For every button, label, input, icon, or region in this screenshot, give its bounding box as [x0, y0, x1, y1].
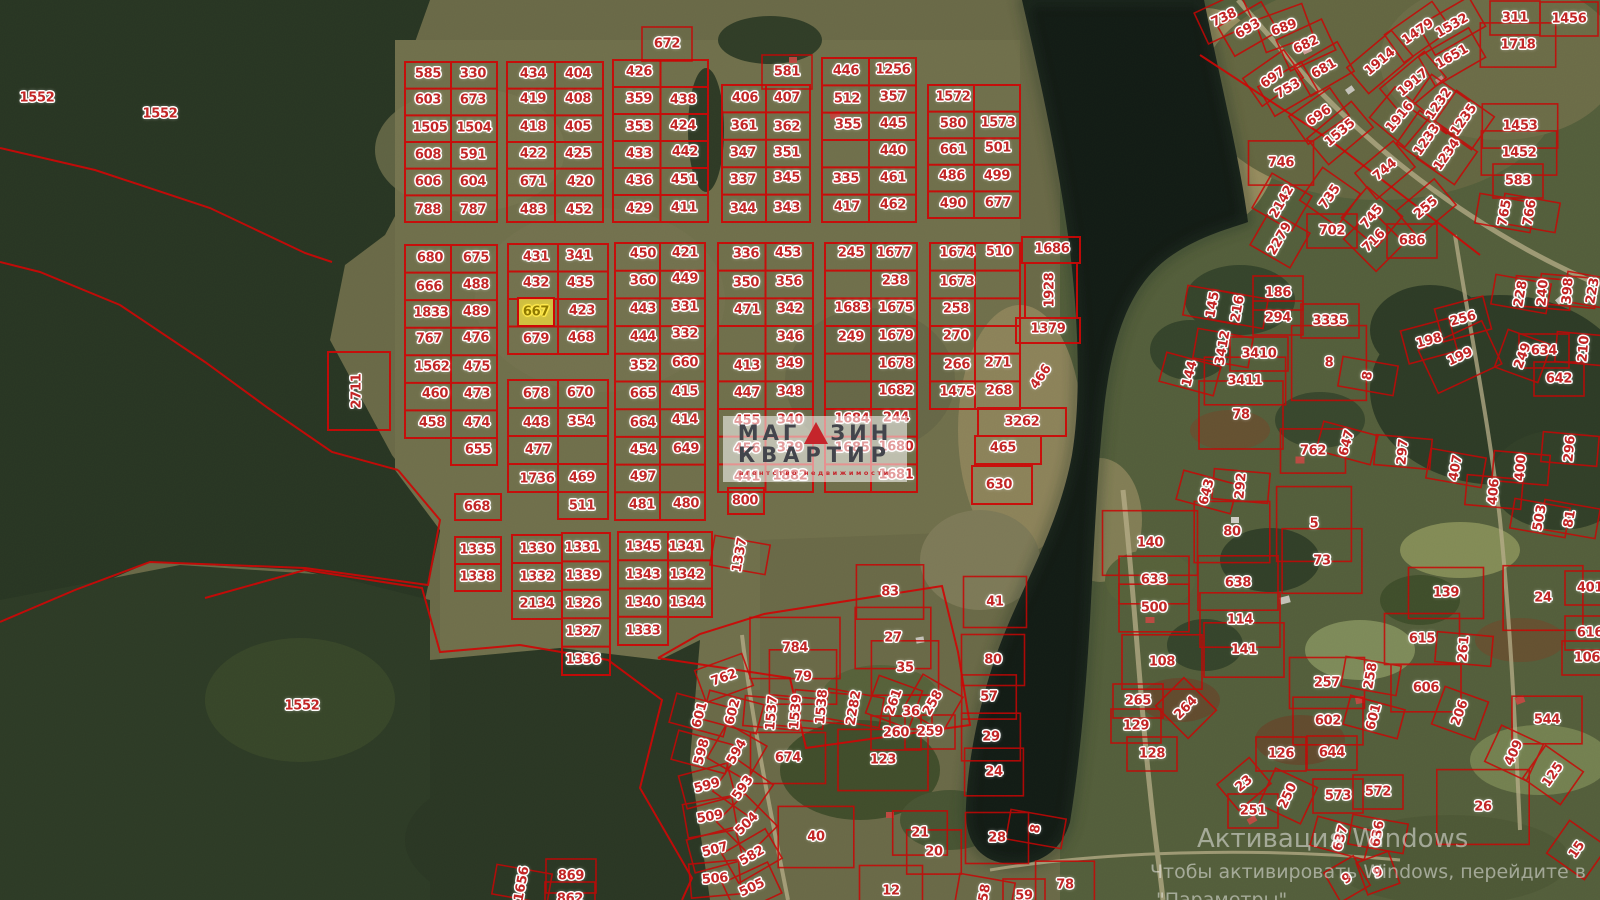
- plot-label-466[interactable]: 466: [1028, 363, 1054, 392]
- plot-label-633[interactable]: 633: [1141, 574, 1167, 587]
- plot-label-630[interactable]: 630: [986, 479, 1012, 492]
- plot-label-501[interactable]: 501: [985, 142, 1011, 155]
- plot-label-1234[interactable]: 1234: [1432, 137, 1463, 173]
- plot-label-716[interactable]: 716: [1360, 227, 1388, 255]
- plot-label-1572[interactable]: 1572: [936, 91, 971, 104]
- plot-label-407[interactable]: 407: [774, 92, 800, 105]
- plot-label-784[interactable]: 784: [782, 642, 808, 655]
- plot-label-1256[interactable]: 1256: [876, 64, 911, 77]
- plot-label-585[interactable]: 585: [415, 68, 441, 81]
- plot-label-2142[interactable]: 2142: [1268, 184, 1297, 221]
- plot-label-661[interactable]: 661: [940, 144, 966, 157]
- plot-label-311[interactable]: 311: [1502, 12, 1528, 25]
- plot-label-36[interactable]: 36: [902, 706, 920, 719]
- plot-label-26[interactable]: 26: [1474, 801, 1492, 814]
- plot-label-20[interactable]: 20: [925, 846, 943, 859]
- plot-label-346[interactable]: 346: [777, 331, 803, 344]
- plot-label-1379[interactable]: 1379: [1031, 323, 1066, 336]
- plot-label-421[interactable]: 421: [672, 247, 698, 260]
- plot-label-198[interactable]: 198: [1415, 331, 1444, 350]
- plot-label-681[interactable]: 681: [1309, 57, 1338, 81]
- plot-label-582[interactable]: 582: [737, 844, 766, 868]
- plot-label-360[interactable]: 360: [630, 275, 656, 288]
- plot-label-431[interactable]: 431: [523, 251, 549, 264]
- plot-label-336[interactable]: 336: [733, 248, 759, 261]
- plot-label-442[interactable]: 442: [672, 146, 698, 159]
- plot-label-409[interactable]: 409: [1503, 738, 1526, 767]
- plot-label-512[interactable]: 512: [834, 93, 860, 106]
- plot-label-468[interactable]: 468: [568, 332, 594, 345]
- plot-label-80[interactable]: 80: [1223, 526, 1241, 539]
- plot-label-1673[interactable]: 1673: [940, 276, 975, 289]
- plot-label-599[interactable]: 599: [693, 776, 722, 795]
- plot-label-24[interactable]: 24: [985, 766, 1003, 779]
- plot-label-643[interactable]: 643: [1197, 478, 1216, 507]
- plot-label-667[interactable]: 667: [523, 306, 549, 319]
- plot-label-452[interactable]: 452: [566, 204, 592, 217]
- plot-label-664[interactable]: 664: [630, 417, 656, 430]
- plot-label-766[interactable]: 766: [1521, 199, 1538, 227]
- plot-label-511[interactable]: 511: [569, 500, 595, 513]
- plot-label-506[interactable]: 506: [701, 871, 728, 886]
- plot-label-341[interactable]: 341: [566, 250, 592, 263]
- plot-label-583[interactable]: 583: [1505, 175, 1531, 188]
- plot-label-489[interactable]: 489: [463, 306, 489, 319]
- plot-label-504[interactable]: 504: [733, 810, 761, 838]
- plot-label-1327[interactable]: 1327: [566, 626, 601, 639]
- plot-label-1679[interactable]: 1679: [879, 330, 914, 343]
- plot-label-1677[interactable]: 1677: [877, 247, 912, 260]
- plot-label-666[interactable]: 666: [416, 281, 442, 294]
- plot-label-258[interactable]: 258: [921, 688, 945, 717]
- plot-label-800[interactable]: 800: [732, 495, 758, 508]
- plot-label-674[interactable]: 674: [775, 752, 801, 765]
- plot-label-8[interactable]: 8: [1029, 824, 1043, 835]
- plot-label-255[interactable]: 255: [1412, 195, 1440, 222]
- plot-label-480[interactable]: 480: [673, 498, 699, 511]
- plot-label-245[interactable]: 245: [838, 247, 864, 260]
- plot-label-57[interactable]: 57: [980, 691, 998, 704]
- plot-label-638[interactable]: 638: [1225, 577, 1251, 590]
- plot-label-591[interactable]: 591: [460, 149, 486, 162]
- plot-label-767[interactable]: 767: [416, 333, 442, 346]
- plot-label-404[interactable]: 404: [565, 68, 591, 81]
- plot-label-788[interactable]: 788: [415, 204, 441, 217]
- plot-label-344[interactable]: 344: [730, 203, 756, 216]
- plot-label-435[interactable]: 435: [567, 277, 593, 290]
- plot-label-78[interactable]: 78: [1056, 879, 1074, 892]
- plot-label-660[interactable]: 660: [672, 357, 698, 370]
- plot-label-1475[interactable]: 1475: [940, 386, 975, 399]
- plot-label-679[interactable]: 679: [523, 333, 549, 346]
- plot-label-745[interactable]: 745: [1359, 203, 1386, 231]
- plot-label-348[interactable]: 348: [777, 386, 803, 399]
- plot-label-1678[interactable]: 1678: [879, 358, 914, 371]
- plot-label-3412[interactable]: 3412: [1214, 330, 1233, 367]
- plot-label-1573[interactable]: 1573: [981, 117, 1016, 130]
- plot-label-608[interactable]: 608: [415, 149, 441, 162]
- plot-label-129[interactable]: 129: [1123, 720, 1149, 733]
- plot-label-655[interactable]: 655: [465, 444, 491, 457]
- plot-label-1342[interactable]: 1342: [670, 569, 705, 582]
- plot-label-3411[interactable]: 3411: [1228, 375, 1263, 388]
- plot-label-426[interactable]: 426: [626, 66, 652, 79]
- plot-label-9[interactable]: 9: [1340, 871, 1354, 887]
- plot-label-602[interactable]: 602: [1315, 715, 1341, 728]
- plot-label-1456[interactable]: 1456: [1552, 13, 1587, 26]
- plot-label-79[interactable]: 79: [794, 671, 812, 684]
- plot-label-689[interactable]: 689: [1269, 17, 1298, 38]
- plot-label-1916[interactable]: 1916: [1384, 99, 1416, 134]
- plot-label-446[interactable]: 446: [833, 65, 859, 78]
- plot-label-460[interactable]: 460: [422, 388, 448, 401]
- plot-label-449[interactable]: 449: [672, 273, 698, 286]
- plot-label-357[interactable]: 357: [880, 91, 906, 104]
- plot-label-673[interactable]: 673: [460, 94, 486, 107]
- plot-label-5[interactable]: 5: [1310, 518, 1319, 531]
- plot-label-335[interactable]: 335: [833, 173, 859, 186]
- plot-label-41[interactable]: 41: [986, 596, 1004, 609]
- plot-label-581[interactable]: 581: [774, 66, 800, 79]
- plot-label-603[interactable]: 603: [415, 94, 441, 107]
- plot-label-1333[interactable]: 1333: [626, 625, 661, 638]
- plot-label-572[interactable]: 572: [1365, 786, 1391, 799]
- plot-label-696[interactable]: 696: [1305, 103, 1334, 129]
- plot-label-359[interactable]: 359: [626, 93, 652, 106]
- plot-label-1718[interactable]: 1718: [1501, 39, 1536, 52]
- plot-label-1552[interactable]: 1552: [285, 700, 320, 713]
- plot-label-1479[interactable]: 1479: [1400, 17, 1436, 48]
- plot-label-139[interactable]: 139: [1433, 587, 1459, 600]
- plot-label-1235[interactable]: 1235: [1449, 102, 1480, 138]
- plot-label-250[interactable]: 250: [1277, 781, 1300, 810]
- plot-label-258[interactable]: 258: [943, 303, 969, 316]
- plot-label-680[interactable]: 680: [417, 252, 443, 265]
- plot-label-765[interactable]: 765: [1496, 199, 1513, 227]
- plot-label-594[interactable]: 594: [725, 737, 749, 766]
- plot-label-1452[interactable]: 1452: [1502, 147, 1537, 160]
- plot-label-361[interactable]: 361: [731, 120, 757, 133]
- plot-label-1651[interactable]: 1651: [1434, 43, 1471, 72]
- plot-label-490[interactable]: 490: [940, 198, 966, 211]
- plot-label-598[interactable]: 598: [692, 738, 711, 767]
- plot-label-332[interactable]: 332: [672, 328, 698, 341]
- plot-label-637[interactable]: 637: [1331, 824, 1350, 853]
- plot-label-471[interactable]: 471: [734, 304, 760, 317]
- plot-label-24[interactable]: 24: [1534, 592, 1552, 605]
- plot-label-210[interactable]: 210: [1576, 335, 1591, 362]
- plot-label-475[interactable]: 475: [464, 361, 490, 374]
- plot-label-448[interactable]: 448: [523, 417, 549, 430]
- plot-label-433[interactable]: 433: [626, 148, 652, 161]
- plot-label-1683[interactable]: 1683: [835, 302, 870, 315]
- plot-label-458[interactable]: 458: [419, 417, 445, 430]
- plot-label-615[interactable]: 615: [1409, 633, 1435, 646]
- plot-label-29[interactable]: 29: [982, 731, 1000, 744]
- plot-label-488[interactable]: 488: [463, 279, 489, 292]
- plot-label-602[interactable]: 602: [723, 698, 742, 727]
- plot-label-1562[interactable]: 1562: [415, 361, 450, 374]
- plot-label-1686[interactable]: 1686: [1035, 243, 1070, 256]
- plot-label-1332[interactable]: 1332: [520, 571, 555, 584]
- plot-label-616[interactable]: 616: [1577, 627, 1600, 640]
- plot-label-447[interactable]: 447: [734, 387, 760, 400]
- plot-label-28[interactable]: 28: [988, 832, 1006, 845]
- plot-label-1339[interactable]: 1339: [566, 570, 601, 583]
- plot-label-3410[interactable]: 3410: [1242, 348, 1277, 361]
- plot-label-58[interactable]: 58: [977, 883, 993, 900]
- plot-label-1656[interactable]: 1656: [513, 866, 532, 900]
- plot-label-481[interactable]: 481: [629, 499, 655, 512]
- plot-label-636[interactable]: 636: [1369, 820, 1386, 848]
- plot-label-762[interactable]: 762: [1300, 445, 1326, 458]
- plot-label-108[interactable]: 108: [1149, 656, 1175, 669]
- plot-label-123[interactable]: 123: [870, 754, 896, 767]
- plot-label-423[interactable]: 423: [569, 305, 595, 318]
- plot-label-406[interactable]: 406: [1486, 478, 1501, 505]
- plot-label-509[interactable]: 509: [696, 808, 724, 825]
- plot-label-352[interactable]: 352: [630, 360, 656, 373]
- plot-label-1340[interactable]: 1340: [626, 597, 661, 610]
- plot-label-682[interactable]: 682: [1291, 34, 1320, 57]
- plot-label-343[interactable]: 343: [774, 202, 800, 215]
- plot-label-503[interactable]: 503: [1531, 504, 1548, 532]
- plot-label-199[interactable]: 199: [1445, 346, 1474, 369]
- plot-label-1337[interactable]: 1337: [731, 537, 750, 574]
- plot-label-1532[interactable]: 1532: [1434, 12, 1471, 41]
- plot-label-601[interactable]: 601: [1364, 703, 1383, 732]
- plot-label-413[interactable]: 413: [734, 360, 760, 373]
- plot-label-342[interactable]: 342: [777, 303, 803, 316]
- plot-label-1341[interactable]: 1341: [669, 541, 704, 554]
- plot-label-355[interactable]: 355: [835, 119, 861, 132]
- plot-label-411[interactable]: 411: [671, 202, 697, 215]
- plot-label-1331[interactable]: 1331: [565, 542, 600, 555]
- plot-label-474[interactable]: 474: [464, 417, 490, 430]
- plot-label-261[interactable]: 261: [1456, 635, 1471, 662]
- plot-label-8[interactable]: 8: [1361, 371, 1375, 382]
- plot-label-23[interactable]: 23: [1233, 773, 1255, 794]
- plot-label-2282[interactable]: 2282: [845, 690, 864, 727]
- plot-label-1928[interactable]: 1928: [1044, 273, 1057, 308]
- plot-label-434[interactable]: 434: [520, 68, 546, 81]
- plot-label-349[interactable]: 349: [777, 358, 803, 371]
- plot-label-580[interactable]: 580: [940, 118, 966, 131]
- plot-label-251[interactable]: 251: [1240, 805, 1266, 818]
- plot-label-477[interactable]: 477: [525, 444, 551, 457]
- plot-label-665[interactable]: 665: [630, 388, 656, 401]
- plot-label-292[interactable]: 292: [1233, 472, 1248, 499]
- plot-label-1326[interactable]: 1326: [566, 598, 601, 611]
- plot-label-422[interactable]: 422: [520, 148, 546, 161]
- plot-label-1232[interactable]: 1232: [1424, 86, 1455, 122]
- plot-label-125[interactable]: 125: [1540, 761, 1566, 790]
- plot-label-400[interactable]: 400: [1513, 454, 1528, 481]
- plot-label-606[interactable]: 606: [415, 176, 441, 189]
- plot-label-440[interactable]: 440: [880, 145, 906, 158]
- plot-label-451[interactable]: 451: [671, 174, 697, 187]
- plot-label-1338[interactable]: 1338: [460, 571, 495, 584]
- plot-label-432[interactable]: 432: [523, 277, 549, 290]
- plot-label-1233[interactable]: 1233: [1412, 122, 1443, 158]
- plot-label-296[interactable]: 296: [1562, 435, 1577, 462]
- plot-label-499[interactable]: 499: [984, 170, 1010, 183]
- plot-label-27[interactable]: 27: [884, 632, 902, 645]
- plot-label-80[interactable]: 80: [984, 654, 1002, 667]
- plot-label-1914[interactable]: 1914: [1362, 46, 1397, 78]
- plot-label-297[interactable]: 297: [1395, 438, 1410, 465]
- plot-label-12[interactable]: 12: [882, 885, 900, 898]
- plot-label-593[interactable]: 593: [730, 774, 756, 803]
- plot-label-670[interactable]: 670: [567, 387, 593, 400]
- plot-label-414[interactable]: 414: [672, 414, 698, 427]
- plot-label-15[interactable]: 15: [1567, 839, 1588, 861]
- plot-label-126[interactable]: 126: [1268, 748, 1294, 761]
- plot-label-510[interactable]: 510: [986, 246, 1012, 259]
- plot-label-497[interactable]: 497: [630, 471, 656, 484]
- plot-label-268[interactable]: 268: [986, 385, 1012, 398]
- plot-label-417[interactable]: 417: [834, 201, 860, 214]
- plot-label-2279[interactable]: 2279: [1266, 221, 1295, 258]
- plot-label-1917[interactable]: 1917: [1395, 67, 1430, 99]
- plot-label-398[interactable]: 398: [1560, 277, 1575, 304]
- plot-label-216[interactable]: 216: [1229, 295, 1246, 323]
- plot-label-469[interactable]: 469: [569, 472, 595, 485]
- plot-label-257[interactable]: 257: [1314, 677, 1340, 690]
- plot-label-738[interactable]: 738: [1209, 7, 1238, 30]
- plot-label-354[interactable]: 354: [568, 416, 594, 429]
- plot-label-350[interactable]: 350: [733, 277, 759, 290]
- plot-label-1345[interactable]: 1345: [626, 541, 661, 554]
- plot-label-1736[interactable]: 1736: [520, 473, 555, 486]
- plot-label-762[interactable]: 762: [709, 667, 738, 688]
- plot-label-419[interactable]: 419: [520, 93, 546, 106]
- plot-label-418[interactable]: 418: [520, 121, 546, 134]
- plot-label-425[interactable]: 425: [565, 148, 591, 161]
- plot-label-1833[interactable]: 1833: [414, 307, 449, 320]
- plot-label-407[interactable]: 407: [1447, 454, 1464, 482]
- plot-label-144[interactable]: 144: [1180, 360, 1199, 389]
- plot-label-83[interactable]: 83: [881, 586, 899, 599]
- plot-label-266[interactable]: 266: [944, 359, 970, 372]
- plot-label-1537[interactable]: 1537: [764, 695, 780, 731]
- plot-label-505[interactable]: 505: [737, 877, 766, 900]
- plot-label-406[interactable]: 406: [732, 92, 758, 105]
- plot-label-2134[interactable]: 2134: [520, 598, 555, 611]
- plot-label-420[interactable]: 420: [567, 176, 593, 189]
- plot-label-294[interactable]: 294: [1265, 312, 1291, 325]
- plot-label-443[interactable]: 443: [630, 303, 656, 316]
- plot-label-35[interactable]: 35: [896, 662, 914, 675]
- plot-label-356[interactable]: 356: [776, 276, 802, 289]
- plot-label-331[interactable]: 331: [672, 301, 698, 314]
- plot-label-746[interactable]: 746: [1268, 157, 1294, 170]
- plot-label-649[interactable]: 649: [673, 443, 699, 456]
- plot-label-21[interactable]: 21: [911, 827, 929, 840]
- plot-label-573[interactable]: 573: [1325, 790, 1351, 803]
- plot-label-601[interactable]: 601: [690, 701, 709, 730]
- plot-label-141[interactable]: 141: [1231, 644, 1257, 657]
- map-viewport[interactable]: 1552155215522711585330434404426672603673…: [0, 0, 1600, 900]
- plot-label-106[interactable]: 106: [1574, 652, 1600, 665]
- plot-label-337[interactable]: 337: [730, 174, 756, 187]
- plot-label-606[interactable]: 606: [1413, 682, 1439, 695]
- plot-label-476[interactable]: 476: [463, 332, 489, 345]
- plot-label-186[interactable]: 186: [1265, 287, 1291, 300]
- plot-label-114[interactable]: 114: [1227, 614, 1253, 627]
- plot-label-260[interactable]: 260: [883, 727, 909, 740]
- plot-label-223[interactable]: 223: [1584, 277, 1600, 305]
- plot-label-465[interactable]: 465: [990, 442, 1016, 455]
- plot-label-1453[interactable]: 1453: [1503, 120, 1538, 133]
- plot-label-461[interactable]: 461: [880, 172, 906, 185]
- plot-label-862[interactable]: 862: [557, 893, 583, 900]
- plot-label-1330[interactable]: 1330: [520, 543, 555, 556]
- plot-label-1343[interactable]: 1343: [626, 569, 661, 582]
- plot-label-424[interactable]: 424: [670, 120, 696, 133]
- plot-label-1552[interactable]: 1552: [20, 92, 55, 105]
- plot-label-238[interactable]: 238: [882, 275, 908, 288]
- plot-label-81[interactable]: 81: [1562, 509, 1578, 528]
- plot-label-8[interactable]: 8: [1325, 357, 1334, 370]
- plot-label-408[interactable]: 408: [565, 93, 591, 106]
- plot-label-259[interactable]: 259: [917, 726, 943, 739]
- plot-label-500[interactable]: 500: [1141, 602, 1167, 615]
- plot-label-1335[interactable]: 1335: [460, 544, 495, 557]
- plot-label-3262[interactable]: 3262: [1005, 416, 1040, 429]
- plot-label-40[interactable]: 40: [807, 831, 825, 844]
- plot-label-672[interactable]: 672: [654, 38, 680, 51]
- plot-label-787[interactable]: 787: [460, 204, 486, 217]
- plot-label-240[interactable]: 240: [1535, 279, 1550, 306]
- plot-label-1504[interactable]: 1504: [457, 122, 492, 135]
- plot-label-353[interactable]: 353: [626, 121, 652, 134]
- plot-label-671[interactable]: 671: [520, 176, 546, 189]
- plot-label-1505[interactable]: 1505: [413, 122, 448, 135]
- plot-label-264[interactable]: 264: [1172, 694, 1200, 722]
- plot-label-604[interactable]: 604: [460, 176, 486, 189]
- plot-label-1674[interactable]: 1674: [940, 247, 975, 260]
- plot-label-401[interactable]: 401: [1577, 582, 1600, 595]
- plot-label-1336[interactable]: 1336: [566, 654, 601, 667]
- plot-label-1682[interactable]: 1682: [879, 385, 914, 398]
- plot-label-270[interactable]: 270: [943, 330, 969, 343]
- plot-label-347[interactable]: 347: [730, 147, 756, 160]
- plot-label-249[interactable]: 249: [838, 331, 864, 344]
- plot-label-265[interactable]: 265: [1125, 695, 1151, 708]
- plot-label-438[interactable]: 438: [670, 94, 696, 107]
- plot-label-228[interactable]: 228: [1512, 280, 1529, 308]
- plot-label-744[interactable]: 744: [1371, 157, 1399, 184]
- plot-label-271[interactable]: 271: [985, 357, 1011, 370]
- plot-label-1552[interactable]: 1552: [143, 108, 178, 121]
- plot-label-415[interactable]: 415: [672, 386, 698, 399]
- plot-label-128[interactable]: 128: [1139, 748, 1165, 761]
- plot-label-206[interactable]: 206: [1449, 698, 1470, 727]
- plot-label-668[interactable]: 668: [464, 501, 490, 514]
- plot-label-3335[interactable]: 3335: [1313, 315, 1348, 328]
- plot-label-436[interactable]: 436: [626, 175, 652, 188]
- plot-label-735[interactable]: 735: [1317, 183, 1343, 212]
- plot-label-405[interactable]: 405: [565, 121, 591, 134]
- plot-label-1535[interactable]: 1535: [1322, 117, 1357, 149]
- plot-label-1675[interactable]: 1675: [879, 302, 914, 315]
- plot-label-362[interactable]: 362: [774, 121, 800, 134]
- plot-label-644[interactable]: 644: [1319, 747, 1345, 760]
- plot-label-9[interactable]: 9: [1372, 865, 1385, 880]
- plot-label-473[interactable]: 473: [464, 388, 490, 401]
- plot-label-450[interactable]: 450: [630, 248, 656, 261]
